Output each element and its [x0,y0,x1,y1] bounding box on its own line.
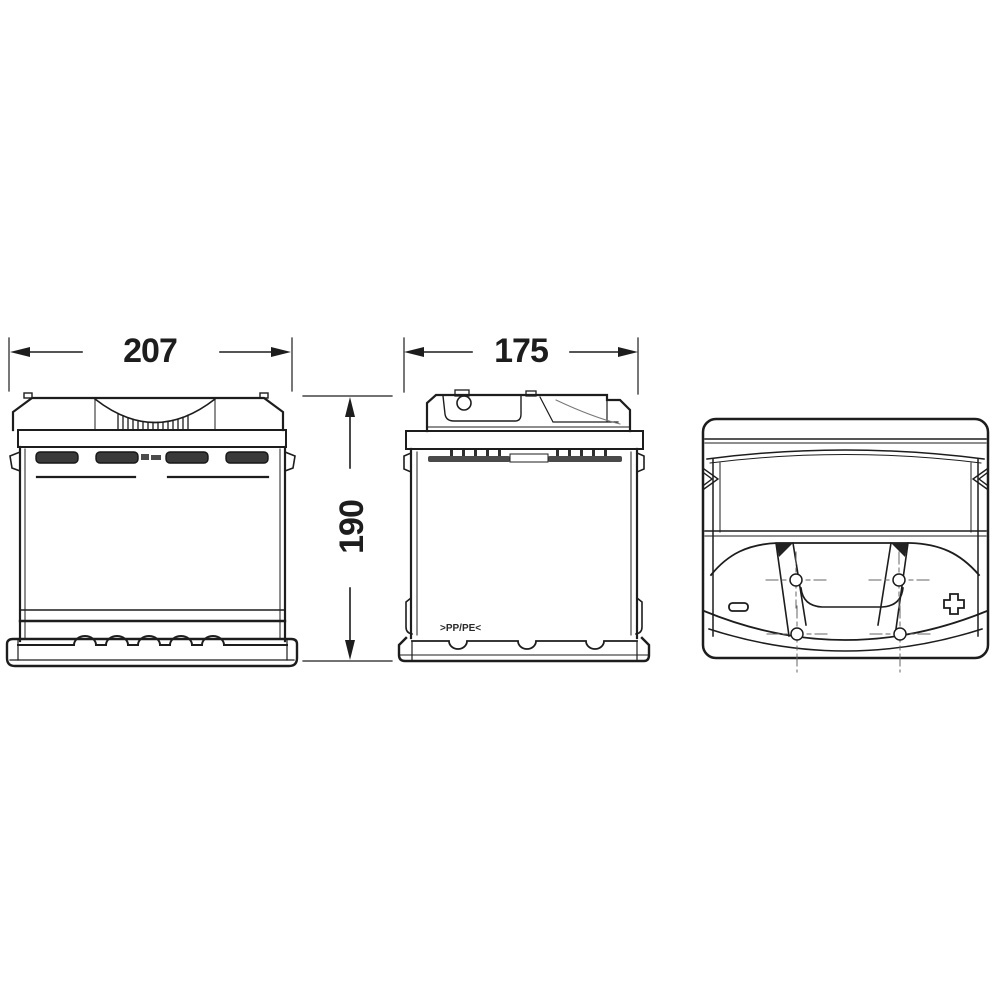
battery-dimension-diagram: 207 175 190 >PP/PE< [0,0,1000,1000]
front-top-cap [13,393,283,430]
top-post-centerlines [766,552,930,672]
positive-terminal-icon [944,594,964,614]
side-terminal-post [457,396,471,410]
front-grip-ribs [118,414,188,430]
front-base-scallops [18,636,287,645]
height-value: 190 [334,487,370,567]
front-body [10,447,295,641]
front-base [7,636,297,666]
front-lid-band [18,430,286,447]
top-view [703,419,988,672]
top-handle-recess [801,588,903,607]
front-view [7,393,297,666]
front-embossed-mark [141,454,161,460]
side-terminal-pocket [443,396,521,421]
technical-drawing [0,0,1000,1000]
top-left-notch [704,469,718,489]
side-lid-band [406,431,643,449]
side-top-cap [427,390,630,431]
front-width-value: 207 [110,333,190,369]
front-left-tab [10,452,20,471]
front-handle-scoop [95,399,215,423]
front-right-tab [285,452,295,471]
side-base [399,638,649,661]
recycling-code-mark: >PP/PE< [440,623,481,634]
side-body [404,448,644,638]
side-depth-value: 175 [481,333,561,369]
side-label-strip [428,448,622,462]
side-view [399,390,649,661]
dimension-lines [9,338,638,661]
side-base-notches [412,641,637,649]
negative-terminal-icon [729,603,748,611]
top-right-notch [973,469,987,489]
